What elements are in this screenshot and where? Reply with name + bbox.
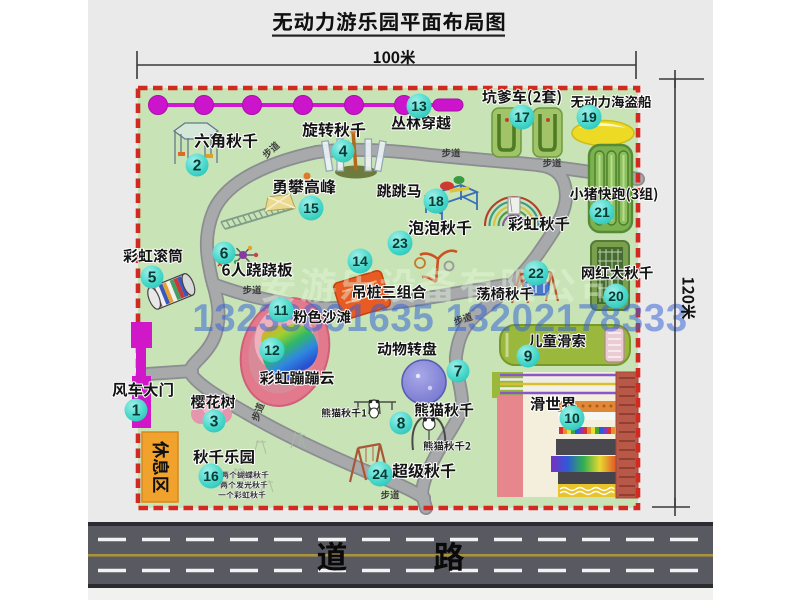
svg-text:13: 13 [411,98,427,114]
svg-text:2: 2 [193,158,202,175]
svg-text:21: 21 [594,204,610,220]
svg-text:6: 6 [220,246,229,263]
svg-text:4: 4 [339,144,348,161]
svg-text:17: 17 [514,109,530,125]
svg-text:18: 18 [428,193,444,209]
svg-text:22: 22 [528,265,544,281]
svg-text:24: 24 [372,466,388,482]
svg-text:23: 23 [392,235,408,251]
svg-text:15: 15 [303,200,319,216]
svg-text:14: 14 [352,253,368,269]
svg-text:16: 16 [203,468,219,484]
svg-text:3: 3 [210,414,219,431]
svg-text:5: 5 [148,270,157,287]
svg-text:9: 9 [524,349,533,366]
svg-text:12: 12 [264,342,280,358]
svg-text:19: 19 [581,109,597,125]
svg-text:11: 11 [274,302,289,318]
svg-text:8: 8 [397,416,406,433]
svg-text:10: 10 [564,410,580,426]
svg-text:20: 20 [608,288,624,304]
svg-text:1: 1 [132,403,141,420]
svg-text:7: 7 [454,364,463,381]
